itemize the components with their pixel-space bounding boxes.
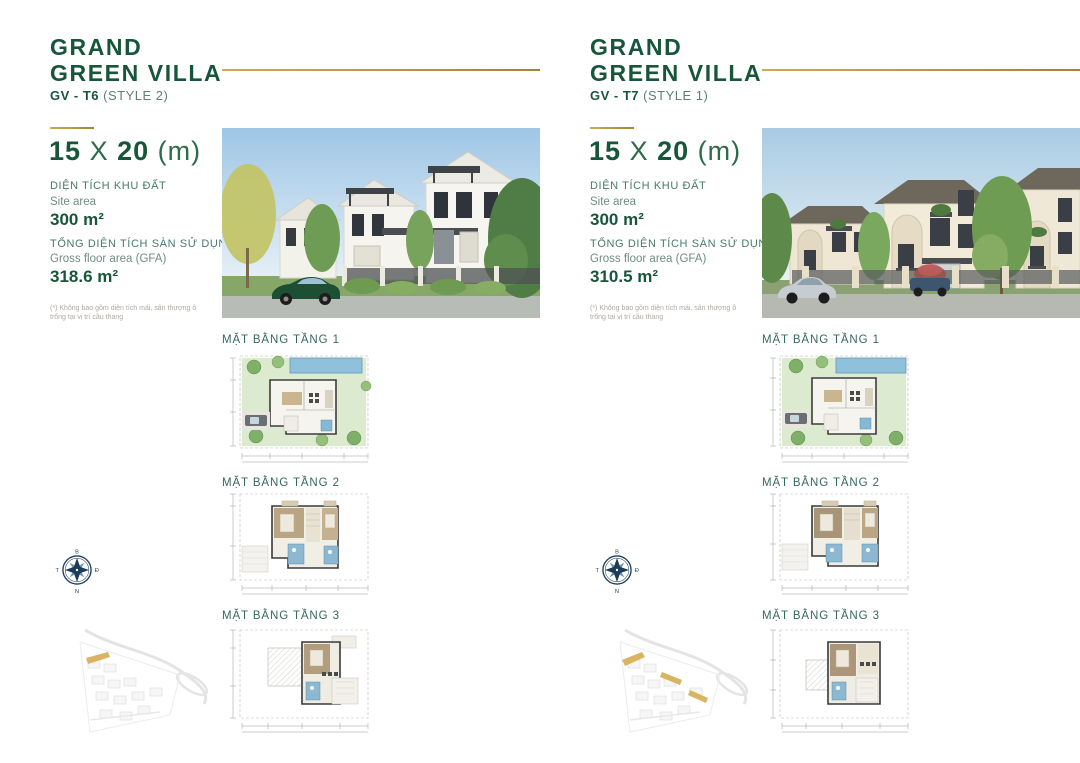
floorplan-level1 <box>766 350 921 473</box>
compass-east: Đ <box>635 568 639 574</box>
compass-west: T <box>55 568 59 574</box>
site-area-value: 300 m² <box>590 210 644 230</box>
panel-gv-t7: GRAND GREEN VILLA GV - T7 (STYLE 1) 15 X… <box>540 0 1080 763</box>
floorplan-level3-drawing <box>766 622 921 738</box>
gfa-value: 318.6 m² <box>50 267 118 287</box>
footnote: (*) Không bao gồm diện tích mái, sân thư… <box>590 304 742 322</box>
lot-depth: 20 <box>117 136 149 166</box>
masterplan-map <box>30 620 218 758</box>
floorplan-label-1: MẶT BẰNG TẦNG 1 <box>762 334 880 346</box>
gold-accent-line <box>50 127 94 129</box>
villa-title-line1: GRAND <box>50 34 222 60</box>
house-footprint <box>812 501 878 566</box>
house-footprint <box>272 501 338 568</box>
model-subtitle: GV - T6 (STYLE 2) <box>50 88 168 103</box>
floorplan-level3 <box>226 622 381 743</box>
compass-north: B <box>75 549 79 555</box>
dimension-separator: X <box>630 136 649 166</box>
villa-rendering-illustration <box>762 128 1080 318</box>
gfa-label-vi: TỔNG DIỆN TÍCH SÀN SỬ DỤNG <box>590 238 776 250</box>
pool <box>836 358 906 373</box>
gold-divider <box>222 69 540 71</box>
dimension-unit: (m) <box>698 136 741 166</box>
driveway-car <box>242 412 270 430</box>
gold-divider <box>762 69 1080 71</box>
floorplan-level1-drawing <box>766 350 921 468</box>
floorplan-label-3: MẶT BẰNG TẦNG 3 <box>222 610 340 622</box>
gfa-label-en: Gross floor area (GFA) <box>50 253 166 265</box>
site-area-label-vi: DIỆN TÍCH KHU ĐẤT <box>590 180 706 192</box>
footnote: (*) Không bao gồm diện tích mái, sân thư… <box>50 304 202 322</box>
masterplan-map <box>570 620 758 758</box>
dimension-unit: (m) <box>158 136 201 166</box>
roof-area <box>268 648 302 686</box>
floorplan-level3 <box>766 622 921 743</box>
lot-dimensions: 15 X 20 (m) <box>589 136 741 167</box>
gfa-label-vi: TỔNG DIỆN TÍCH SÀN SỬ DỤNG <box>50 238 236 250</box>
compass-north: B <box>615 549 619 555</box>
house-footprint <box>270 380 336 434</box>
compass-south: N <box>75 589 79 595</box>
villa-title-line2: GREEN VILLA <box>50 60 222 86</box>
villa-title-line2: GREEN VILLA <box>590 60 762 86</box>
site-area-label-vi: DIỆN TÍCH KHU ĐẤT <box>50 180 166 192</box>
brochure-page: GRAND GREEN VILLA GV - T6 (STYLE 2) 15 X… <box>0 0 1080 763</box>
floorplan-label-1: MẶT BẰNG TẦNG 1 <box>222 334 340 346</box>
floorplan-level2 <box>766 490 921 607</box>
pool <box>290 358 362 373</box>
villa-rendering-illustration <box>222 128 540 318</box>
floorplan-level1 <box>226 350 381 473</box>
site-area-value: 300 m² <box>50 210 104 230</box>
gold-accent-line <box>590 127 634 129</box>
lot-depth: 20 <box>657 136 689 166</box>
lot-width: 15 <box>49 136 81 166</box>
driveway-car <box>782 410 810 428</box>
floorplan-label-2: MẶT BẰNG TẦNG 2 <box>762 477 880 489</box>
floorplan-label-3: MẶT BẰNG TẦNG 3 <box>762 610 880 622</box>
floorplan-level3-drawing <box>226 622 381 738</box>
compass-icon: B Đ N T <box>592 545 642 595</box>
compass-south: N <box>615 589 619 595</box>
floorplan-level2-drawing <box>766 490 921 602</box>
compass-west: T <box>595 568 599 574</box>
model-subtitle: GV - T7 (STYLE 1) <box>590 88 708 103</box>
compass-east: Đ <box>95 568 99 574</box>
compass-icon: B Đ N T <box>52 545 102 595</box>
style-label: (STYLE 2) <box>103 88 168 103</box>
site-area-label-en: Site area <box>50 196 96 208</box>
lot-dimensions: 15 X 20 (m) <box>49 136 201 167</box>
villa-title: GRAND GREEN VILLA <box>50 34 222 86</box>
gfa-label-en: Gross floor area (GFA) <box>590 253 706 265</box>
style-label: (STYLE 1) <box>643 88 708 103</box>
villa-rendering <box>222 128 540 318</box>
floorplan-level1-drawing <box>226 350 381 468</box>
model-code: GV - T7 <box>590 88 639 103</box>
panel-gv-t6: GRAND GREEN VILLA GV - T6 (STYLE 2) 15 X… <box>0 0 540 763</box>
dimension-separator: X <box>90 136 109 166</box>
lot-width: 15 <box>589 136 621 166</box>
floorplan-label-2: MẶT BẰNG TẦNG 2 <box>222 477 340 489</box>
house-footprint <box>828 642 880 704</box>
villa-rendering <box>762 128 1080 318</box>
model-code: GV - T6 <box>50 88 99 103</box>
gfa-value: 310.5 m² <box>590 267 658 287</box>
villa-title: GRAND GREEN VILLA <box>590 34 762 86</box>
floorplan-level2 <box>226 490 381 607</box>
floorplan-level2-drawing <box>226 490 381 602</box>
villa-title-line1: GRAND <box>590 34 762 60</box>
site-area-label-en: Site area <box>590 196 636 208</box>
